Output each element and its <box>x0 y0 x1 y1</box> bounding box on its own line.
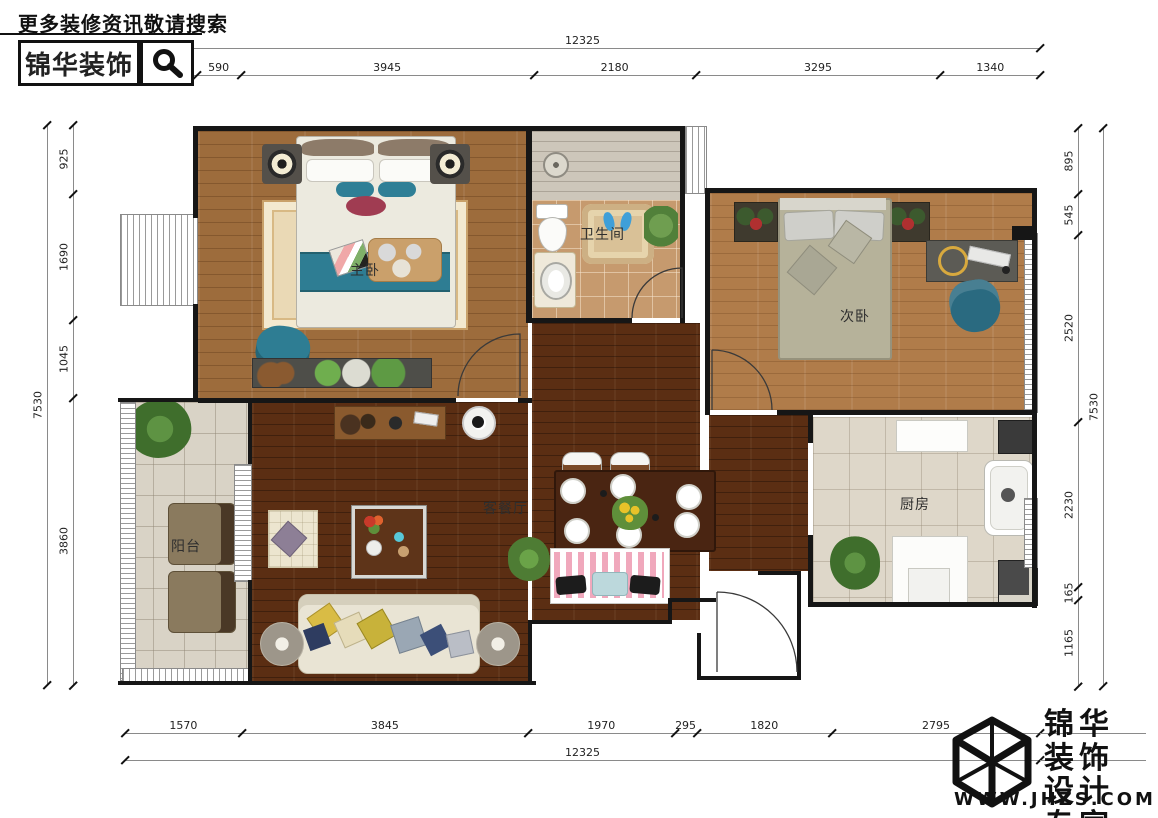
footer-brand-line1: 锦华装饰 <box>1044 708 1148 775</box>
room-label-bathroom: 卫生间 <box>580 224 625 244</box>
door-swing-arcs <box>0 0 1158 818</box>
floorplan-page: 更多装修资讯敬请搜索 锦华装饰 12325 965590394521803295… <box>0 0 1158 818</box>
room-label-kitchen: 厨房 <box>900 494 930 514</box>
search-icon-box <box>140 40 194 86</box>
room-label-master: 主卧 <box>350 260 380 280</box>
search-icon <box>149 47 185 79</box>
footer-website: WWW.JHZS.COM <box>954 789 1148 810</box>
room-label-second: 次卧 <box>840 306 870 326</box>
room-label-living-dining: 客餐厅 <box>483 498 528 518</box>
room-label-balcony: 阳台 <box>171 536 201 556</box>
brand-logo-box: 锦华装饰 <box>18 40 140 86</box>
